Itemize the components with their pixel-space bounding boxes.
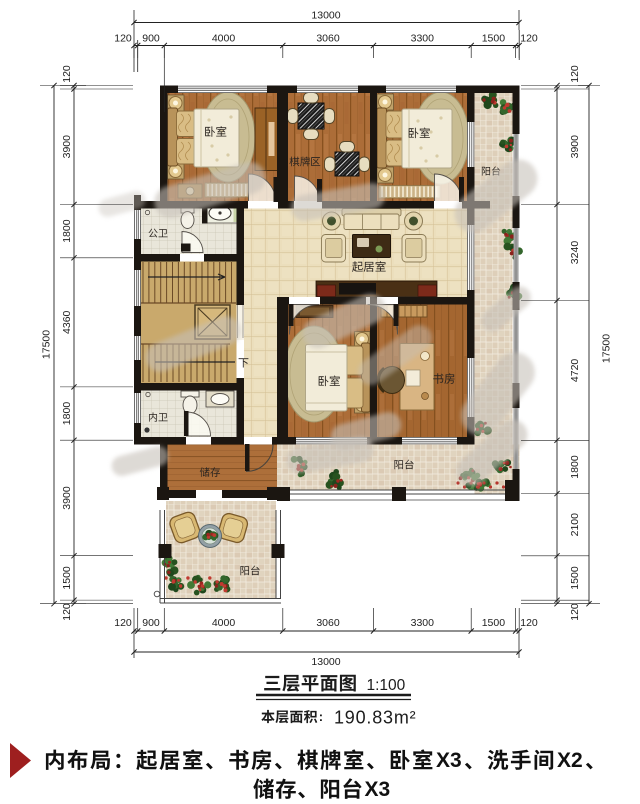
svg-text:3900: 3900 (569, 135, 581, 159)
svg-text:1500: 1500 (482, 33, 506, 45)
svg-text::: : (319, 709, 323, 724)
svg-text:17500: 17500 (41, 330, 53, 359)
svg-text:4000: 4000 (212, 33, 236, 45)
svg-text:120: 120 (520, 33, 538, 45)
svg-text:120: 120 (569, 603, 581, 621)
svg-text:120: 120 (61, 603, 73, 621)
svg-text:1500: 1500 (482, 617, 506, 629)
svg-text:3240: 3240 (569, 241, 581, 265)
svg-text:120: 120 (569, 65, 581, 83)
svg-text:13000: 13000 (311, 656, 340, 668)
svg-text:120: 120 (520, 617, 538, 629)
svg-text:X2: X2 (557, 749, 583, 772)
svg-text:3900: 3900 (61, 486, 73, 510)
svg-text:13000: 13000 (311, 10, 340, 22)
svg-text:4000: 4000 (212, 617, 236, 629)
svg-text:1500: 1500 (569, 566, 581, 590)
svg-text:1500: 1500 (61, 566, 73, 590)
svg-text:1800: 1800 (569, 455, 581, 479)
svg-text:4360: 4360 (61, 310, 73, 334)
svg-text:120: 120 (61, 65, 73, 83)
svg-text:3300: 3300 (411, 33, 435, 45)
svg-text:1:100: 1:100 (367, 677, 406, 694)
svg-text:120: 120 (114, 617, 132, 629)
svg-text:17500: 17500 (601, 334, 613, 363)
svg-text:X3: X3 (436, 749, 462, 772)
svg-text:190.83m²: 190.83m² (334, 708, 416, 728)
svg-text:3060: 3060 (316, 33, 340, 45)
svg-text:1800: 1800 (61, 219, 73, 243)
svg-text:1800: 1800 (61, 402, 73, 426)
svg-text:3900: 3900 (61, 135, 73, 159)
svg-text:3300: 3300 (411, 617, 435, 629)
svg-text:900: 900 (142, 617, 160, 629)
svg-text:X3: X3 (365, 778, 391, 801)
svg-text:2100: 2100 (569, 513, 581, 537)
svg-text:120: 120 (114, 33, 132, 45)
svg-text:3060: 3060 (316, 617, 340, 629)
svg-text:4720: 4720 (569, 359, 581, 383)
svg-text:900: 900 (142, 33, 160, 45)
